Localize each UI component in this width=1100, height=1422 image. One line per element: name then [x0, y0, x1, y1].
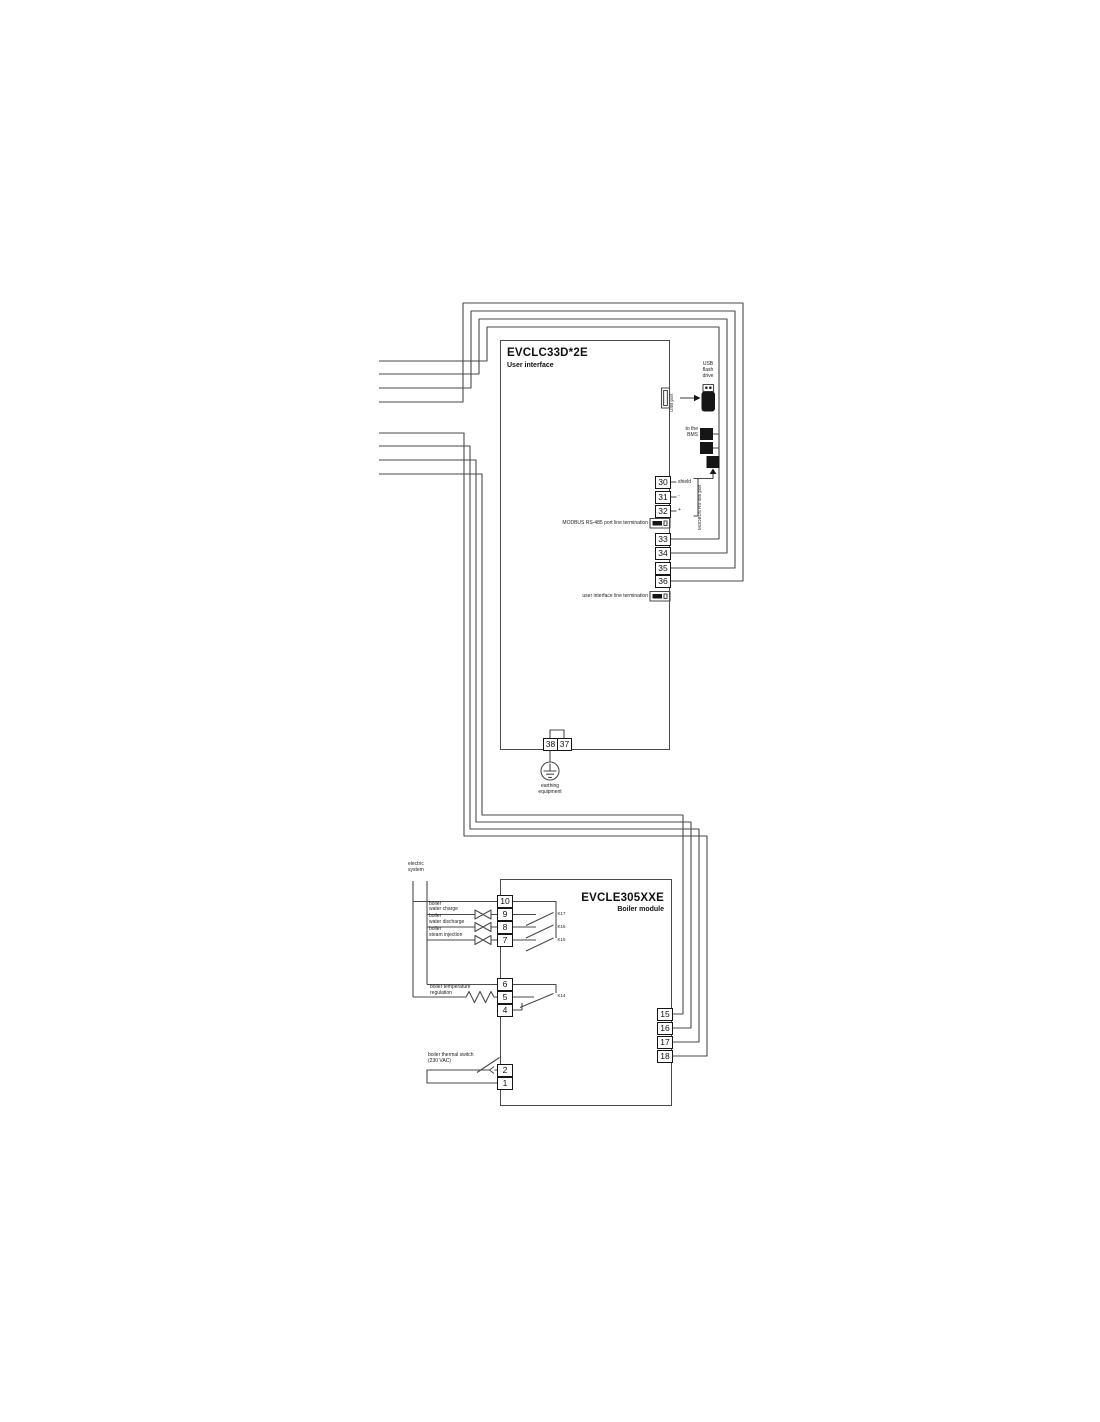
boiler-module-title: EVCLE305XXE	[540, 892, 664, 904]
terminal-2: 2	[497, 1064, 513, 1077]
terminal-37: 37	[557, 738, 572, 751]
terminal-15: 15	[657, 1008, 673, 1021]
bms-arrow-icon	[710, 469, 717, 475]
terminal-1: 1	[497, 1077, 513, 1090]
wiring-diagram: EVCLC33D*2E User interface USB port USB …	[0, 0, 1100, 1422]
earth-symbol-icon	[541, 762, 559, 780]
steam-injection-label: boiler steam injection	[429, 927, 462, 939]
earthing-label: earthing equipment	[525, 784, 575, 796]
ui-module-subtitle: User interface	[507, 362, 554, 369]
terminal-32: 32	[655, 505, 671, 518]
terminal-17: 17	[657, 1036, 673, 1049]
terminal-30: 30	[655, 476, 671, 489]
bms-label: to the BMS	[668, 427, 698, 439]
relay-k14-label: K14	[558, 993, 566, 998]
usb-flash-drive-label: USB flash drive	[695, 362, 721, 380]
terminal-8: 8	[497, 921, 513, 934]
terminal-34: 34	[655, 547, 671, 560]
water-discharge-label: boiler water discharge	[429, 914, 464, 926]
terminal-36: 36	[655, 575, 671, 588]
electric-system-label: electric system	[408, 862, 424, 874]
terminal-7: 7	[497, 934, 513, 947]
modbus-termination-label: MODBUS RS-485 port line termination	[540, 521, 648, 527]
terminal-16: 16	[657, 1022, 673, 1035]
usb-flash-drive-icon	[702, 385, 716, 412]
terminal-35: 35	[655, 562, 671, 575]
boiler-module-box	[500, 879, 672, 1106]
terminal-31-label: -	[678, 494, 680, 500]
water-charge-label: boiler water charge	[429, 902, 458, 914]
terminal-33: 33	[655, 533, 671, 546]
valve-icon	[475, 910, 491, 945]
terminal-4: 4	[497, 1004, 513, 1017]
relay-k17-label: K17	[558, 911, 566, 916]
terminal-38: 38	[543, 738, 558, 751]
temp-regulation-label: boiler temperature regulation	[430, 985, 471, 997]
bms-connector-icon	[700, 428, 720, 468]
terminal-9: 9	[497, 908, 513, 921]
terminal-31: 31	[655, 491, 671, 504]
switch-contact-icon	[490, 1067, 498, 1074]
modbus-port-label: MODBUS RS-485 port	[698, 474, 703, 530]
relay-k16-label: K16	[558, 924, 566, 929]
relay-k15-label: K15	[558, 937, 566, 942]
terminal-10: 10	[497, 895, 513, 908]
terminal-5: 5	[497, 991, 513, 1004]
usb-port-label: USB port	[670, 386, 675, 412]
terminal-30-label: shield	[678, 480, 691, 486]
ui-termination-label: user interface line termination	[540, 594, 648, 600]
user-interface-module-box	[500, 340, 670, 750]
thermal-switch-label: boiler thermal switch (230 VAC)	[428, 1053, 474, 1065]
usb-arrow-icon	[694, 395, 701, 401]
ui-module-title: EVCLC33D*2E	[507, 347, 588, 359]
terminal-32-label: +	[678, 508, 681, 514]
terminal-6: 6	[497, 978, 513, 991]
terminal-18: 18	[657, 1050, 673, 1063]
